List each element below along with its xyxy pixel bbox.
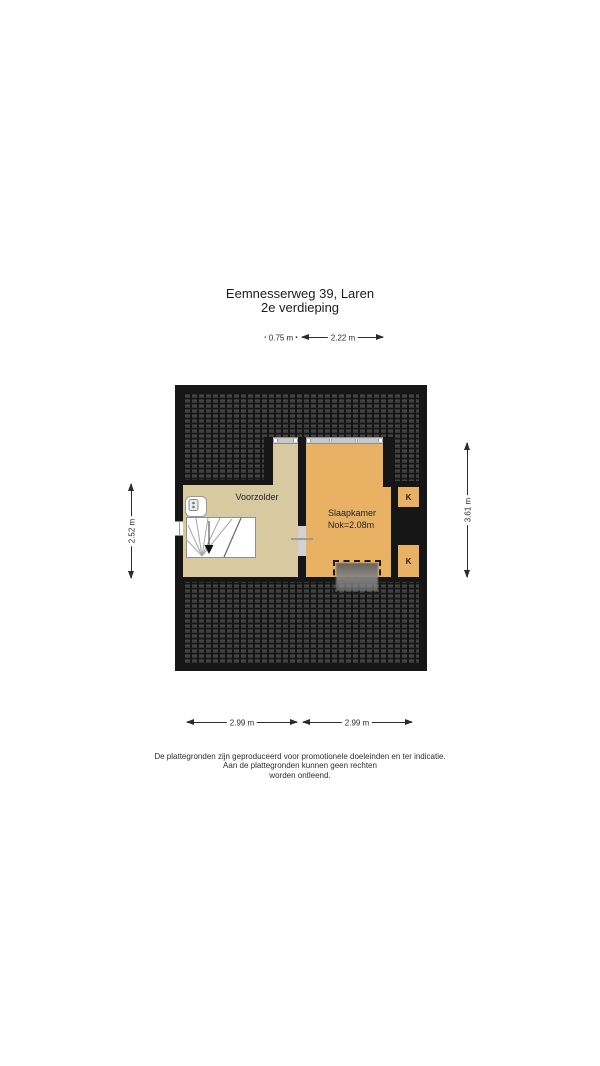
door-opening-mark [291, 538, 313, 540]
window-mullion-tick [355, 439, 358, 442]
wall-between-rooms [298, 437, 306, 582]
dim-label-left: 2.52 m [128, 516, 137, 546]
plan-title-block: Eemnesserweg 39, Laren 2e verdieping [0, 287, 600, 314]
wall-voorzolder-arm-left [264, 437, 273, 485]
disclaimer-line-1: De plattegronden zijn geproduceerd voor … [0, 752, 600, 761]
disclaimer-line-3: worden ontleend. [0, 771, 600, 780]
closet-top-label: K [398, 487, 419, 507]
wall-rooms-bottom [183, 577, 419, 582]
mv-unit-icon [185, 496, 207, 517]
staircase-icon [186, 517, 256, 558]
plan-floor-name: 2e verdieping [0, 301, 600, 315]
closet-bottom: K [398, 545, 419, 577]
room-voorzolder-arm [273, 444, 298, 485]
disclaimer-line-2: Aan de plattegronden kunnen geen rechten [0, 761, 600, 770]
door-opening [298, 526, 306, 556]
room-label-voorzolder: Voorzolder [207, 492, 307, 502]
staircase-symbol [186, 517, 256, 558]
window-left-wall [175, 521, 183, 536]
roof-window-dashed-outline [333, 560, 381, 594]
dim-label-right: 3.61 m [464, 495, 473, 525]
window-mullion-tick [329, 439, 332, 442]
dim-label-bottom-left: 2.99 m [227, 719, 257, 728]
wall-closet-divider [391, 487, 398, 577]
dim-label-top-small: 0.75 m [266, 334, 296, 343]
plan-address: Eemnesserweg 39, Laren [0, 287, 600, 301]
window-voorzolder-top [273, 437, 298, 444]
closet-top: K [398, 487, 419, 507]
dim-label-top-wide: 2.22 m [328, 334, 358, 343]
dim-label-bottom-right: 2.99 m [342, 719, 372, 728]
window-slaapkamer-top [306, 437, 383, 444]
room-label-slaapkamer-ridge: Nok=2.08m [311, 520, 391, 530]
wall-slaapkamer-right-upper [383, 437, 393, 487]
closet-bottom-label: K [398, 545, 419, 577]
disclaimer-text: De plattegronden zijn geproduceerd voor … [0, 752, 600, 780]
roof-window-glass [336, 563, 378, 591]
room-label-slaapkamer: Slaapkamer [312, 508, 392, 518]
wall-between-closets [398, 507, 419, 545]
floorplan-canvas: K K [175, 385, 427, 671]
mv-unit-symbol [185, 496, 207, 517]
